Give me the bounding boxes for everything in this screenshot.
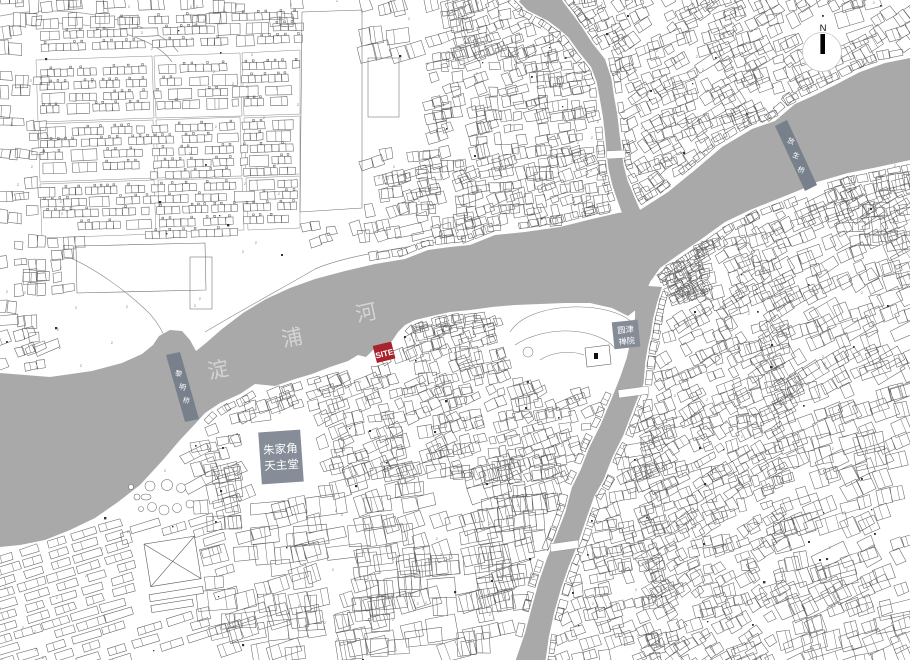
svg-text:2: 2 xyxy=(561,444,563,448)
svg-text:2: 2 xyxy=(701,267,703,271)
svg-text:2: 2 xyxy=(350,425,352,429)
svg-text:禅院: 禅院 xyxy=(618,335,635,347)
svg-text:2: 2 xyxy=(639,510,641,514)
svg-text:2: 2 xyxy=(213,70,215,74)
svg-text:2: 2 xyxy=(56,596,58,600)
svg-text:2: 2 xyxy=(246,85,248,89)
svg-text:天主堂: 天主堂 xyxy=(264,458,299,473)
svg-text:2: 2 xyxy=(248,617,250,621)
svg-text:2: 2 xyxy=(751,29,753,33)
svg-text:2: 2 xyxy=(194,304,196,308)
svg-text:2: 2 xyxy=(702,68,704,72)
svg-text:2: 2 xyxy=(34,630,36,634)
svg-text:2: 2 xyxy=(31,165,33,169)
svg-text:2: 2 xyxy=(689,28,691,32)
svg-text:2: 2 xyxy=(409,338,411,342)
svg-text:2: 2 xyxy=(418,199,420,203)
svg-text:2: 2 xyxy=(752,457,754,461)
svg-text:2: 2 xyxy=(232,82,234,86)
svg-text:2: 2 xyxy=(842,208,844,212)
svg-text:2: 2 xyxy=(59,346,61,350)
svg-text:2: 2 xyxy=(457,230,459,234)
svg-text:2: 2 xyxy=(378,176,380,180)
svg-text:2: 2 xyxy=(706,398,708,402)
svg-text:2: 2 xyxy=(592,602,594,606)
svg-text:2: 2 xyxy=(204,123,206,127)
svg-text:2: 2 xyxy=(597,26,599,30)
svg-text:2: 2 xyxy=(324,621,326,625)
svg-text:2: 2 xyxy=(211,465,213,469)
svg-text:2: 2 xyxy=(663,641,665,645)
svg-text:2: 2 xyxy=(199,297,201,301)
svg-text:2: 2 xyxy=(276,87,278,91)
svg-text:2: 2 xyxy=(374,436,376,440)
svg-text:2: 2 xyxy=(290,3,292,7)
svg-text:2: 2 xyxy=(741,435,743,439)
svg-text:2: 2 xyxy=(75,306,77,310)
svg-text:2: 2 xyxy=(244,182,246,186)
svg-text:2: 2 xyxy=(873,1,875,5)
svg-text:2: 2 xyxy=(673,538,675,542)
svg-text:2: 2 xyxy=(336,0,338,3)
svg-text:2: 2 xyxy=(667,362,669,366)
svg-text:2: 2 xyxy=(427,62,429,66)
svg-text:2: 2 xyxy=(297,103,299,107)
svg-text:2: 2 xyxy=(894,164,896,168)
svg-text:2: 2 xyxy=(61,212,63,216)
svg-text:2: 2 xyxy=(581,76,583,80)
svg-text:2: 2 xyxy=(449,552,451,556)
svg-text:2: 2 xyxy=(674,394,676,398)
svg-text:2: 2 xyxy=(577,141,579,145)
svg-text:2: 2 xyxy=(393,165,395,169)
svg-text:2: 2 xyxy=(846,568,848,572)
svg-text:2: 2 xyxy=(791,90,793,94)
svg-text:2: 2 xyxy=(17,183,19,187)
svg-text:2: 2 xyxy=(476,72,478,76)
svg-text:2: 2 xyxy=(279,411,281,415)
svg-text:2: 2 xyxy=(196,5,198,9)
svg-text:2: 2 xyxy=(392,618,394,622)
svg-text:2: 2 xyxy=(436,537,438,541)
svg-text:2: 2 xyxy=(712,411,714,415)
svg-text:2: 2 xyxy=(696,55,698,59)
svg-text:2: 2 xyxy=(776,241,778,245)
svg-text:2: 2 xyxy=(639,86,641,90)
svg-text:2: 2 xyxy=(126,305,128,309)
svg-text:2: 2 xyxy=(106,81,108,85)
svg-text:2: 2 xyxy=(35,648,37,652)
svg-text:2: 2 xyxy=(425,165,427,169)
svg-text:2: 2 xyxy=(591,136,593,140)
svg-text:2: 2 xyxy=(365,401,367,405)
svg-text:2: 2 xyxy=(574,155,576,159)
svg-text:2: 2 xyxy=(781,574,783,578)
svg-text:2: 2 xyxy=(6,290,8,294)
svg-text:2: 2 xyxy=(128,5,130,9)
svg-text:2: 2 xyxy=(822,355,824,359)
svg-text:2: 2 xyxy=(601,2,603,6)
svg-text:2: 2 xyxy=(326,0,328,1)
svg-text:2: 2 xyxy=(511,466,513,470)
svg-text:2: 2 xyxy=(517,504,519,508)
svg-text:2: 2 xyxy=(263,116,265,120)
svg-text:2: 2 xyxy=(508,598,510,602)
svg-text:2: 2 xyxy=(635,588,637,592)
svg-text:2: 2 xyxy=(440,553,442,557)
svg-text:2: 2 xyxy=(861,291,863,295)
svg-text:2: 2 xyxy=(393,557,395,561)
svg-text:2: 2 xyxy=(80,364,82,368)
svg-text:2: 2 xyxy=(151,47,153,51)
svg-text:2: 2 xyxy=(514,1,516,5)
svg-text:2: 2 xyxy=(602,631,604,635)
svg-text:2: 2 xyxy=(164,469,166,473)
svg-text:2: 2 xyxy=(641,126,643,130)
svg-text:2: 2 xyxy=(189,152,191,156)
svg-text:2: 2 xyxy=(22,626,24,630)
svg-text:2: 2 xyxy=(816,512,818,516)
svg-text:2: 2 xyxy=(85,574,87,578)
svg-text:2: 2 xyxy=(251,53,253,57)
svg-text:2: 2 xyxy=(766,530,768,534)
svg-text:2: 2 xyxy=(459,13,461,17)
svg-text:2: 2 xyxy=(692,538,694,542)
svg-text:2: 2 xyxy=(101,547,103,551)
svg-text:2: 2 xyxy=(725,421,727,425)
svg-text:2: 2 xyxy=(215,125,217,129)
svg-text:2: 2 xyxy=(597,120,599,124)
svg-text:2: 2 xyxy=(774,222,776,226)
svg-text:2: 2 xyxy=(745,57,747,61)
svg-text:2: 2 xyxy=(505,86,507,90)
svg-text:2: 2 xyxy=(255,241,257,245)
svg-text:2: 2 xyxy=(341,513,343,517)
svg-text:2: 2 xyxy=(332,568,334,572)
svg-text:2: 2 xyxy=(504,158,506,162)
svg-text:2: 2 xyxy=(878,229,880,233)
svg-text:2: 2 xyxy=(824,362,826,366)
svg-text:2: 2 xyxy=(141,31,143,35)
svg-text:2: 2 xyxy=(470,640,472,644)
svg-text:2: 2 xyxy=(127,530,129,534)
svg-text:2: 2 xyxy=(296,645,298,649)
svg-text:2: 2 xyxy=(392,438,394,442)
svg-text:2: 2 xyxy=(203,19,205,23)
svg-text:N: N xyxy=(820,23,827,34)
svg-text:2: 2 xyxy=(191,37,193,41)
svg-text:2: 2 xyxy=(417,602,419,606)
svg-text:2: 2 xyxy=(452,26,454,30)
svg-text:2: 2 xyxy=(479,349,481,353)
svg-text:2: 2 xyxy=(797,222,799,226)
svg-text:2: 2 xyxy=(190,5,192,9)
svg-text:2: 2 xyxy=(359,380,361,384)
svg-text:2: 2 xyxy=(60,266,62,270)
svg-text:2: 2 xyxy=(773,106,775,110)
svg-text:2: 2 xyxy=(573,78,575,82)
svg-text:2: 2 xyxy=(24,291,26,295)
svg-text:2: 2 xyxy=(298,604,300,608)
svg-text:2: 2 xyxy=(837,595,839,599)
svg-text:2: 2 xyxy=(413,599,415,603)
svg-text:2: 2 xyxy=(832,447,834,451)
svg-text:2: 2 xyxy=(425,601,427,605)
svg-text:2: 2 xyxy=(91,80,93,84)
svg-text:2: 2 xyxy=(656,49,658,53)
svg-text:2: 2 xyxy=(30,79,32,83)
svg-text:2: 2 xyxy=(278,192,280,196)
svg-text:2: 2 xyxy=(422,547,424,551)
svg-text:2: 2 xyxy=(829,546,831,550)
svg-text:2: 2 xyxy=(478,576,480,580)
svg-text:2: 2 xyxy=(335,509,337,513)
svg-text:2: 2 xyxy=(489,522,491,526)
svg-text:2: 2 xyxy=(477,1,479,5)
svg-text:2: 2 xyxy=(242,250,244,254)
svg-text:2: 2 xyxy=(466,416,468,420)
svg-text:2: 2 xyxy=(328,233,330,237)
svg-text:2: 2 xyxy=(111,341,113,345)
svg-text:2: 2 xyxy=(408,17,410,21)
svg-text:2: 2 xyxy=(60,200,62,204)
svg-text:2: 2 xyxy=(57,328,59,332)
svg-text:2: 2 xyxy=(336,638,338,642)
svg-text:2: 2 xyxy=(590,169,592,173)
svg-text:2: 2 xyxy=(597,408,599,412)
svg-text:2: 2 xyxy=(4,586,6,590)
svg-text:2: 2 xyxy=(42,656,44,660)
svg-text:2: 2 xyxy=(489,613,491,617)
svg-text:2: 2 xyxy=(748,312,750,316)
svg-text:2: 2 xyxy=(571,159,573,163)
svg-text:2: 2 xyxy=(637,634,639,638)
svg-text:2: 2 xyxy=(876,628,878,632)
svg-text:2: 2 xyxy=(387,177,389,181)
svg-text:圆津: 圆津 xyxy=(617,324,634,336)
